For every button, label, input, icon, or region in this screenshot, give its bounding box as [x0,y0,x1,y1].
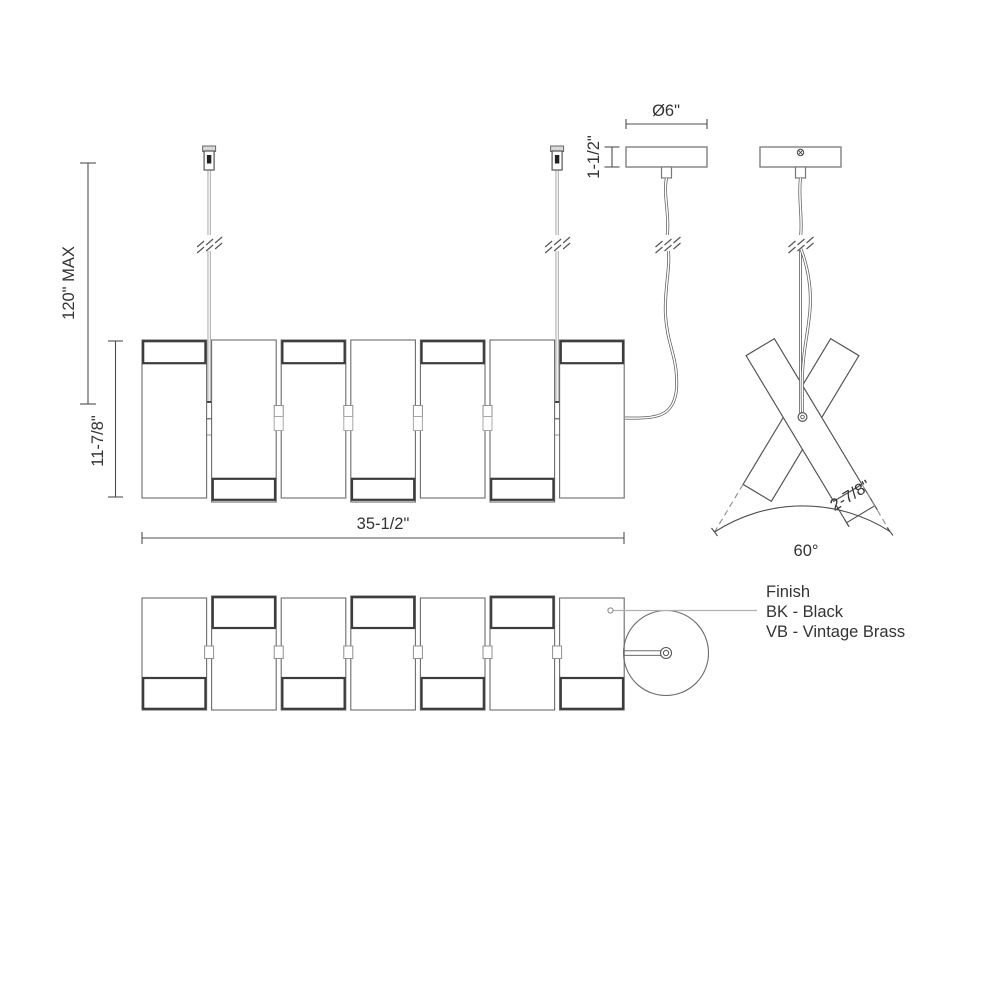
panel-band [422,341,484,363]
dim-canopy-height-label: 1-1/2" [585,135,603,179]
suspension-side [789,178,814,253]
panel-plan-5 [420,598,485,710]
cord-break-icon [656,235,681,253]
finish-title: Finish [766,583,810,601]
drawing-page: 120" MAX 11-7/8" 35-1/2" Ø6" [0,0,1000,1000]
panel-band [561,678,623,709]
panel-band [352,597,414,628]
canopy-body [626,147,707,167]
dim-35-1-2-label: 35-1/2" [357,515,410,533]
panel-plan-2 [212,596,277,710]
cord-connector [798,413,807,422]
canopy-stem-side [796,167,806,178]
finish-legend: Finish BK - Black VB - Vintage Brass [608,583,905,641]
panel-front-1 [142,340,207,498]
panel-band [282,341,344,363]
panel-band [352,479,414,500]
dimension-body-width: 35-1/2" [142,515,624,544]
panel-band [561,341,623,363]
dim-120-max-label: 120" MAX [60,246,78,320]
panel-band [213,597,275,628]
panel-plan-4 [351,596,416,710]
panel-band [422,678,484,709]
panel-plan-6 [490,596,555,710]
cable-gripper-icon [551,146,564,170]
panel-band [213,479,275,500]
callout-marker [608,608,613,613]
dim-11-7-8-label: 11-7/8" [89,415,107,467]
panel-front-7 [560,340,625,498]
panel-plan-3 [281,598,346,710]
panel-front-6 [490,340,555,502]
cable-gripper-icon [203,146,216,170]
panel-band [143,341,205,363]
panel-front-2 [212,340,277,502]
plan-view [142,596,709,710]
dimension-canopy-height: 1-1/2" [585,135,620,179]
technical-drawing: 120" MAX 11-7/8" 35-1/2" Ø6" [0,0,1000,1000]
panel-plan-7 [560,598,625,710]
panel-front-4 [351,340,416,502]
finish-option-vb: VB - Vintage Brass [766,623,905,641]
dim-60-angle-label: 60° [794,542,819,560]
screw-icon [797,149,803,155]
panel-front-3 [281,340,346,498]
finish-option-bk: BK - Black [766,603,844,621]
canopy-plan [624,611,709,696]
side-profile-view: 2-7/8" 60° [712,147,894,560]
power-cord [625,178,681,418]
dimension-body-height: 11-7/8" [89,341,123,497]
panel-plan-1 [142,598,207,710]
panel-front-5 [420,340,485,498]
cable-break-icon [197,235,222,253]
canopy-stem [662,167,672,178]
plan-panels [142,596,624,710]
panel-band [491,597,553,628]
panel-band [143,678,205,709]
front-panels [142,340,624,502]
dimension-canopy-diameter: Ø6" [626,102,707,129]
cable-break-icon [545,235,570,253]
panel-band [491,479,553,500]
panel-band [282,678,344,709]
dim-diameter-label: Ø6" [652,102,680,120]
dimension-max-drop: 120" MAX [60,163,96,404]
front-elevation-view: 120" MAX 11-7/8" 35-1/2" [60,146,624,544]
